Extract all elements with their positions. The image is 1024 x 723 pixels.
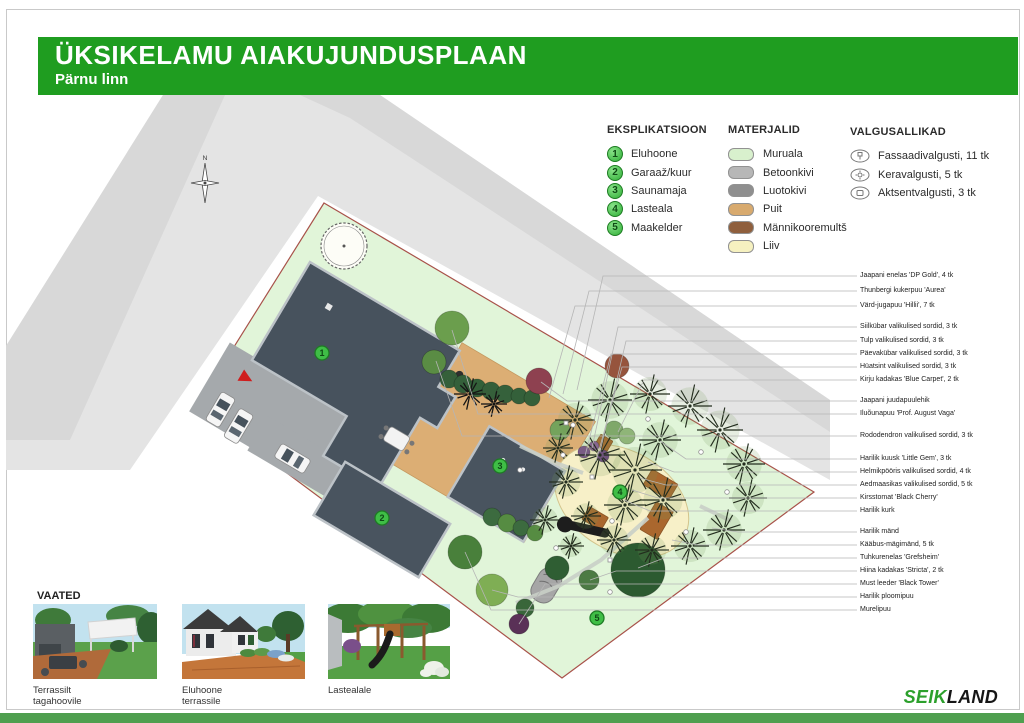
logo-seik: SEIK <box>904 687 947 707</box>
svg-text:4: 4 <box>617 487 622 497</box>
number-badge: 3 <box>607 183 623 199</box>
material-label: Betoonkivi <box>763 167 814 179</box>
light-label: Aktsentvalgusti, 3 tk <box>878 187 976 199</box>
material-swatch <box>728 203 754 216</box>
material-item: Luotokivi <box>728 182 847 200</box>
plant-label: Tuhkurenelas 'Grefsheim' <box>860 554 939 562</box>
view-caption-3: Lastealale <box>328 685 371 696</box>
svg-text:N: N <box>203 155 208 162</box>
svg-text:2: 2 <box>379 513 384 523</box>
light-label: Fassaadivalgusti, 11 tk <box>878 150 989 162</box>
light-point <box>684 530 689 535</box>
plant-label: Jaapani juudapuulehik <box>860 397 930 405</box>
legend-eksplikatsioon-title: EKSPLIKATSIOON <box>607 124 707 136</box>
material-item: Männikooremultš <box>728 219 847 237</box>
eksplikatsioon-item: 4Lasteala <box>607 200 707 218</box>
eksplikatsioon-label: Maakelder <box>631 222 682 234</box>
accent-light-icon <box>850 186 870 200</box>
plant-label: Kirsstomat 'Black Cherry' <box>860 494 938 502</box>
tree <box>526 368 552 394</box>
number-badge: 1 <box>607 146 623 162</box>
plant-label: Harilik kuusk 'Little Gem', 3 tk <box>860 455 951 463</box>
light-point <box>608 590 613 595</box>
view-image-3 <box>328 604 450 679</box>
material-swatch <box>728 221 754 234</box>
plant-label: Jaapani enelas 'DP Gold', 4 tk <box>860 272 953 280</box>
tree <box>545 556 569 580</box>
plant-label: Iluõunapuu 'Prof. August Vaga' <box>860 410 955 418</box>
light-point <box>554 546 559 551</box>
view-image-1 <box>33 604 157 679</box>
tree <box>579 570 599 590</box>
number-badge: 2 <box>607 165 623 181</box>
light-item: Keravalgusti, 5 tk <box>850 165 989 183</box>
plant-label: Kirju kadakas 'Blue Carpet', 2 tk <box>860 376 959 384</box>
light-square <box>564 421 568 425</box>
eksplikatsioon-label: Garaaž/kuur <box>631 167 692 179</box>
views-title: VAATED <box>37 590 81 602</box>
plant-label: Aedmaasikas valikulised sordid, 5 tk <box>860 481 972 489</box>
page-subtitle: Pärnu linn <box>55 71 1018 88</box>
material-label: Männikooremultš <box>763 222 847 234</box>
light-point <box>646 417 651 422</box>
light-point <box>610 519 615 524</box>
light-point <box>725 490 730 495</box>
plant-label: Helmikpööris valikulised sordid, 4 tk <box>860 468 971 476</box>
plant-label: Harilik ploomipuu <box>860 593 914 601</box>
legend-materials-title: MATERJALID <box>728 124 847 136</box>
light-point <box>571 423 576 428</box>
material-label: Puit <box>763 203 782 215</box>
material-item: Puit <box>728 200 847 218</box>
eksplikatsioon-item: 5Maakelder <box>607 219 707 237</box>
light-label: Keravalgusti, 5 tk <box>878 169 962 181</box>
material-swatch <box>728 184 754 197</box>
legend-lights-title: VALGUSALLIKAD <box>850 126 989 138</box>
view-thumbnail-terrace-backyard <box>33 604 157 679</box>
plant-label: Must leeder 'Black Tower' <box>860 580 939 588</box>
material-swatch <box>728 240 754 253</box>
views-section: VAATED Terrassilt tagahoovile <box>37 590 81 606</box>
view-thumbnail-playground <box>328 604 450 679</box>
tree <box>513 520 529 536</box>
plant-label: Harilik kurk <box>860 507 895 515</box>
light-point <box>561 453 566 458</box>
light-point <box>518 468 523 473</box>
view-caption-2: Eluhoone terrassile <box>182 685 222 707</box>
plant-label: Värd-jugapuu 'Hillii', 7 tk <box>860 302 935 310</box>
light-square <box>608 558 612 562</box>
plant-label: Päevakübar valikulised sordid, 3 tk <box>860 350 968 358</box>
svg-text:5: 5 <box>594 613 599 623</box>
tree <box>605 354 629 378</box>
eksplikatsioon-item: 3Saunamaja <box>607 182 707 200</box>
material-label: Liiv <box>763 240 780 252</box>
material-item: Liiv <box>728 237 847 255</box>
plant-label: Rododendron valikulised sordid, 3 tk <box>860 432 973 440</box>
plant-label: Murelipuu <box>860 606 891 614</box>
footer-bar <box>0 713 1024 723</box>
legend-materials: MATERJALID MurualaBetoonkiviLuotokiviPui… <box>728 124 847 255</box>
eksplikatsioon-item: 2Garaaž/kuur <box>607 163 707 181</box>
material-label: Luotokivi <box>763 185 806 197</box>
seikland-logo: SEIKLAND <box>904 687 998 708</box>
plant-label: Siilkübar valikulised sordid, 3 tk <box>860 323 957 331</box>
number-badge: 5 <box>607 220 623 236</box>
material-item: Muruala <box>728 145 847 163</box>
material-label: Muruala <box>763 148 803 160</box>
plan-sheet: 12345N ÜKSIKELAMU AIAKUJUNDUSPLAAN Pärnu… <box>0 0 1024 723</box>
eksplikatsioon-label: Saunamaja <box>631 185 687 197</box>
eksplikatsioon-item: 1Eluhoone <box>607 145 707 163</box>
view-thumbnail-house-terrace <box>182 604 305 679</box>
number-badge: 4 <box>607 201 623 217</box>
light-point <box>699 450 704 455</box>
material-item: Betoonkivi <box>728 163 847 181</box>
material-swatch <box>728 148 754 161</box>
light-item: Fassaadivalgusti, 11 tk <box>850 147 989 165</box>
eksplikatsioon-label: Lasteala <box>631 203 673 215</box>
material-swatch <box>728 166 754 179</box>
svg-text:3: 3 <box>497 461 502 471</box>
plant-label: Thunbergi kukerpuu 'Aurea' <box>860 287 946 295</box>
plant-label: Hüatsint valikulised sordid, 3 tk <box>860 363 956 371</box>
legend-eksplikatsioon: EKSPLIKATSIOON 1Eluhoone2Garaaž/kuur3Sau… <box>607 124 707 237</box>
plant-label: Tulp valikulised sordid, 3 tk <box>860 337 944 345</box>
svg-text:1: 1 <box>319 348 324 358</box>
page-title: ÜKSIKELAMU AIAKUJUNDUSPLAAN <box>55 40 1018 71</box>
light-square <box>590 475 594 479</box>
light-item: Aktsentvalgusti, 3 tk <box>850 184 989 202</box>
sphere-light-icon <box>850 168 870 182</box>
tree <box>422 350 446 374</box>
legend-lights: VALGUSALLIKAD Fassaadivalgusti, 11 tkKer… <box>850 126 989 202</box>
facade-light-icon <box>850 149 870 163</box>
plant-label: Harilik mänd <box>860 528 899 536</box>
header-bar: ÜKSIKELAMU AIAKUJUNDUSPLAAN Pärnu linn <box>38 37 1018 95</box>
plant-label: Kääbus-mägimänd, 5 tk <box>860 541 934 549</box>
view-image-2 <box>182 604 305 679</box>
plant-label: Hiina kadakas 'Stricta', 2 tk <box>860 567 944 575</box>
logo-land: LAND <box>947 687 998 707</box>
view-caption-1: Terrassilt tagahoovile <box>33 685 82 707</box>
eksplikatsioon-label: Eluhoone <box>631 148 678 160</box>
tree <box>435 311 469 345</box>
